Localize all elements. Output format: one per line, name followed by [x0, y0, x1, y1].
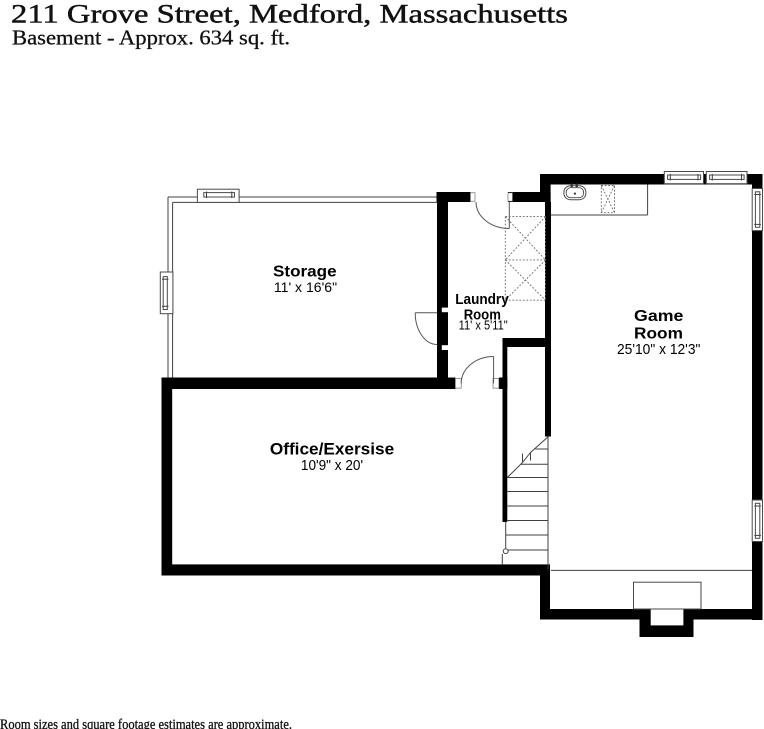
svg-text:Room: Room	[634, 325, 683, 342]
svg-text:Laundry: Laundry	[455, 292, 509, 308]
svg-text:211 Grove Street, Medford, Mas: 211 Grove Street, Medford, Massachusetts	[11, 0, 568, 28]
svg-text:Storage: Storage	[273, 264, 337, 281]
svg-text:11' x 5'11": 11' x 5'11"	[459, 319, 508, 333]
svg-text:Room sizes and square footage: Room sizes and square footage estimates …	[0, 717, 292, 729]
svg-text:10'9" x 20': 10'9" x 20'	[301, 458, 363, 474]
svg-text:Game: Game	[634, 308, 684, 325]
svg-text:Basement - Approx. 634 sq. ft.: Basement - Approx. 634 sq. ft.	[12, 26, 290, 50]
svg-text:11' x 16'6": 11' x 16'6"	[274, 279, 337, 295]
svg-text:Office/Exersise: Office/Exersise	[270, 440, 394, 458]
svg-text:25'10" x 12'3": 25'10" x 12'3"	[617, 341, 700, 358]
